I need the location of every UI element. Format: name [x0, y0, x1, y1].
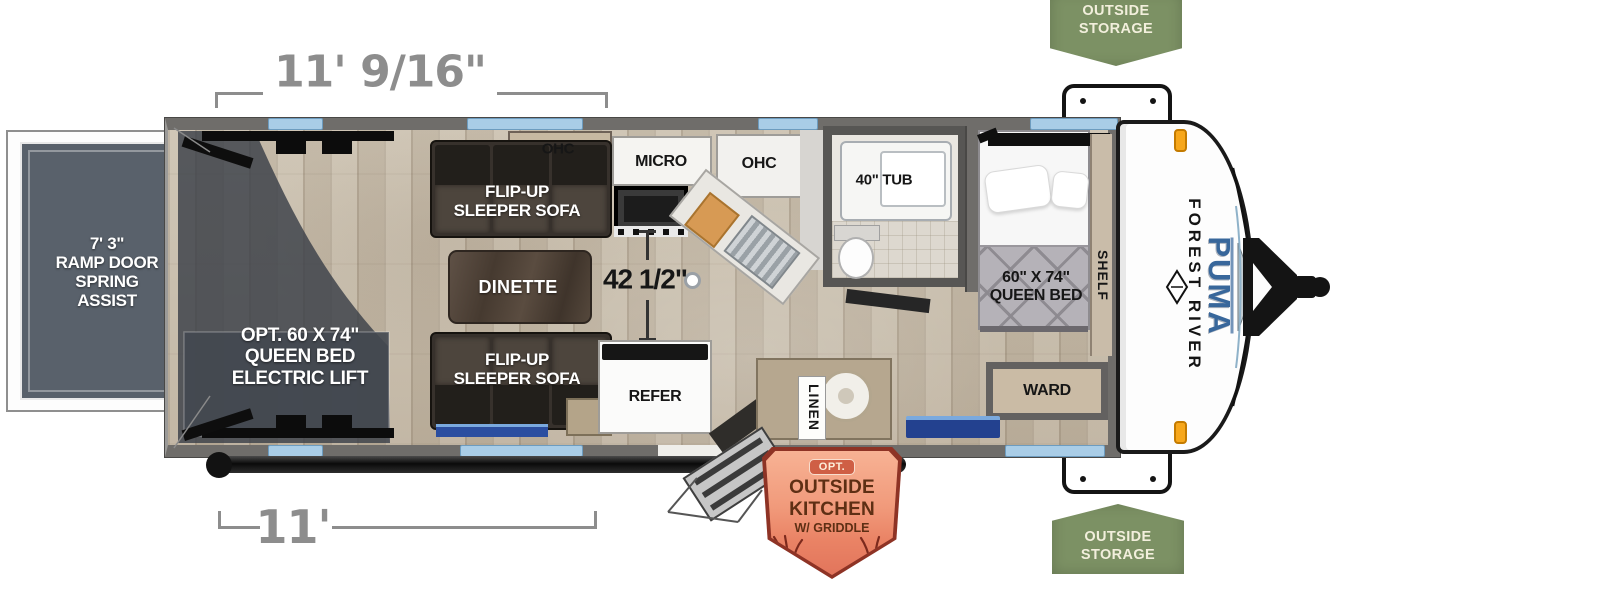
- linen-label: LINEN: [800, 378, 822, 436]
- refrigerator: [598, 340, 712, 434]
- window-bottom-bedroom: [1005, 445, 1105, 457]
- outside-kitchen-line2: KITCHEN: [766, 499, 898, 521]
- window-top-bath: [758, 118, 818, 130]
- bathroom: [823, 126, 967, 287]
- pillow: [1050, 170, 1090, 210]
- bedroom-floor-mat: [906, 416, 1000, 438]
- opt-chip: OPT.: [809, 459, 855, 475]
- kitchen-clearance-label: 42 1/2": [603, 263, 687, 294]
- dimension-bottom: 11': [255, 500, 330, 554]
- toilet-bowl: [838, 237, 874, 279]
- dimension-top: 11' 9/16": [274, 47, 486, 98]
- marker-light-top: [1174, 129, 1187, 152]
- hitch-coupler-knob: [1310, 277, 1330, 297]
- hitch-tongue: [1294, 276, 1316, 298]
- window-top-living: [467, 118, 583, 130]
- tub-label: 40" TUB: [856, 173, 913, 190]
- marker-light-bottom: [1174, 421, 1187, 444]
- sofa-top-label: FLIP-UP SLEEPER SOFA: [454, 182, 581, 220]
- ohc-sofa-label: OHC: [542, 142, 574, 159]
- outside-storage-badge-top: OUTSIDE STORAGE: [1050, 0, 1182, 66]
- ohc-kitchen-label: OHC: [742, 155, 777, 173]
- shelf-label: SHELF: [1091, 245, 1111, 305]
- rack-bar-end-cap: [206, 452, 232, 478]
- sofa-bed-board: [436, 424, 548, 437]
- ramp-door-label: 7' 3" RAMP DOOR SPRING ASSIST: [56, 234, 159, 310]
- cargo-bed-label: OPT. 60 X 74" QUEEN BED ELECTRIC LIFT: [232, 325, 368, 389]
- refer-label: REFER: [629, 388, 682, 406]
- outside-storage-badge-bottom: OUTSIDE STORAGE: [1052, 504, 1184, 574]
- micro-label: MICRO: [635, 153, 687, 171]
- floorplan-canvas: 7' 3" RAMP DOOR SPRING ASSIST: [0, 0, 1600, 590]
- window-top-garage: [268, 118, 323, 130]
- sofa-bottom-label: FLIP-UP SLEEPER SOFA: [454, 350, 581, 388]
- puma-underline: [1231, 238, 1234, 334]
- bedroom-partition-wall: [965, 126, 978, 292]
- outside-kitchen-badge: OPT. OUTSIDE KITCHEN W/ GRIDDLE: [762, 447, 902, 579]
- grass-decoration: [766, 531, 898, 561]
- pillow: [983, 164, 1052, 214]
- dinette-label: DINETTE: [478, 277, 557, 297]
- window-top-bedroom: [1030, 118, 1118, 130]
- outside-kitchen-line1: OUTSIDE: [766, 477, 898, 499]
- queen-bed-label: 60" X 74" QUEEN BED: [990, 269, 1082, 305]
- ward-label: WARD: [1023, 382, 1071, 400]
